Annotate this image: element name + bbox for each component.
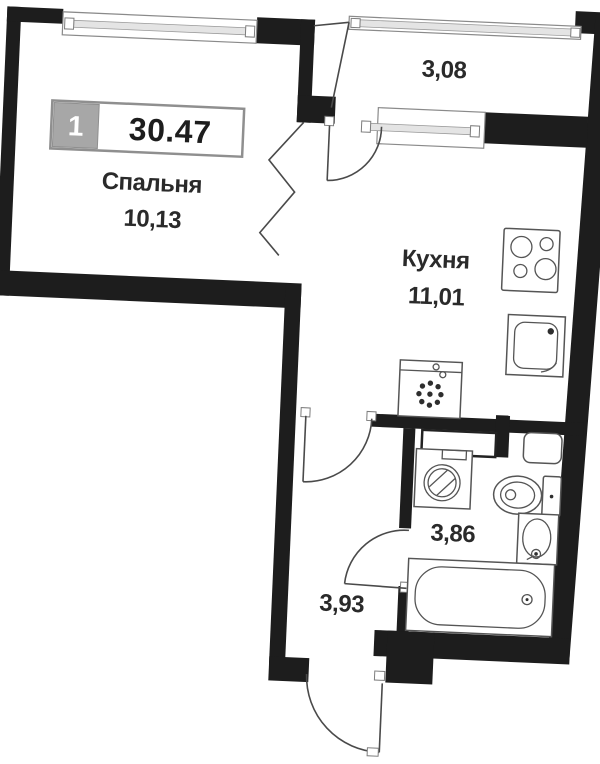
door-hinge-cap [374, 671, 384, 680]
bedroom-area-label: 10,13 [123, 205, 182, 234]
sink-counter [506, 315, 566, 377]
window-cap [65, 18, 74, 29]
door-arc-icon [327, 125, 381, 183]
window-cap [470, 126, 479, 137]
window-cap [361, 121, 370, 132]
unit-number: 1 [67, 110, 84, 142]
window-cap [571, 28, 580, 37]
loggia-area-label: 3,08 [421, 56, 467, 85]
kitchen-name-label: Кухня [401, 245, 470, 275]
window-cap [245, 26, 254, 37]
loggia-window-icon [349, 16, 581, 39]
loggia-left-line [331, 22, 349, 109]
door-arc-icon [345, 528, 409, 587]
bathroom-area-label: 3,86 [430, 519, 476, 548]
door-hinge-cap [325, 116, 334, 125]
kitchen-sink-icon [506, 315, 566, 377]
appliance-body [398, 360, 462, 419]
wall-break-line [259, 121, 304, 257]
bathtub-icon [406, 558, 555, 636]
bedroom-name-label: Спальня [101, 168, 202, 199]
door-leaf [327, 126, 329, 181]
wall-bedroom-top-left [7, 6, 64, 23]
wall-loggia-bottom [483, 112, 588, 148]
hallway-kitchen-door-icon [298, 408, 376, 485]
washing-machine-icon [412, 447, 473, 519]
kitchen-area-label: 11,01 [407, 282, 465, 311]
floor-plan-page: 1 30.47 Спальня 10,13 3,08 Кухня 11,01 3… [0, 0, 600, 764]
bedroom-window-icon [62, 12, 257, 43]
door-leaf [303, 416, 306, 482]
appliance-icon [398, 360, 462, 419]
wall-hallway-left [269, 285, 302, 665]
total-area: 30.47 [128, 111, 212, 151]
washer-body [414, 449, 472, 509]
door-arc-icon [303, 416, 372, 485]
wall-entry-right-jamb [385, 631, 434, 685]
door-leaf [344, 584, 406, 589]
unit-badge: 1 30.47 [50, 100, 244, 156]
door-leaf [379, 683, 382, 752]
bathroom-door-icon [344, 528, 413, 593]
water-heater-icon [523, 432, 562, 464]
wall-entry-left-jamb [268, 656, 309, 682]
wall-bedroom-bottom [0, 270, 302, 308]
toilet-icon [493, 474, 562, 517]
entry-door-icon [303, 668, 385, 756]
wall-bathroom-left-upper [399, 428, 415, 528]
door-end-cap [367, 748, 378, 756]
hallway-area-label: 3,93 [319, 590, 365, 619]
cooktop-icon [502, 228, 561, 292]
door-arc-icon [303, 674, 382, 752]
wall-bedroom-left [0, 6, 21, 295]
door-hinge-cap [301, 408, 310, 417]
loggia-connector-line [314, 21, 349, 28]
floor-plan: 1 30.47 Спальня 10,13 3,08 Кухня 11,01 3… [0, 0, 600, 764]
window-cap [351, 18, 360, 27]
washbasin-icon [517, 513, 559, 565]
